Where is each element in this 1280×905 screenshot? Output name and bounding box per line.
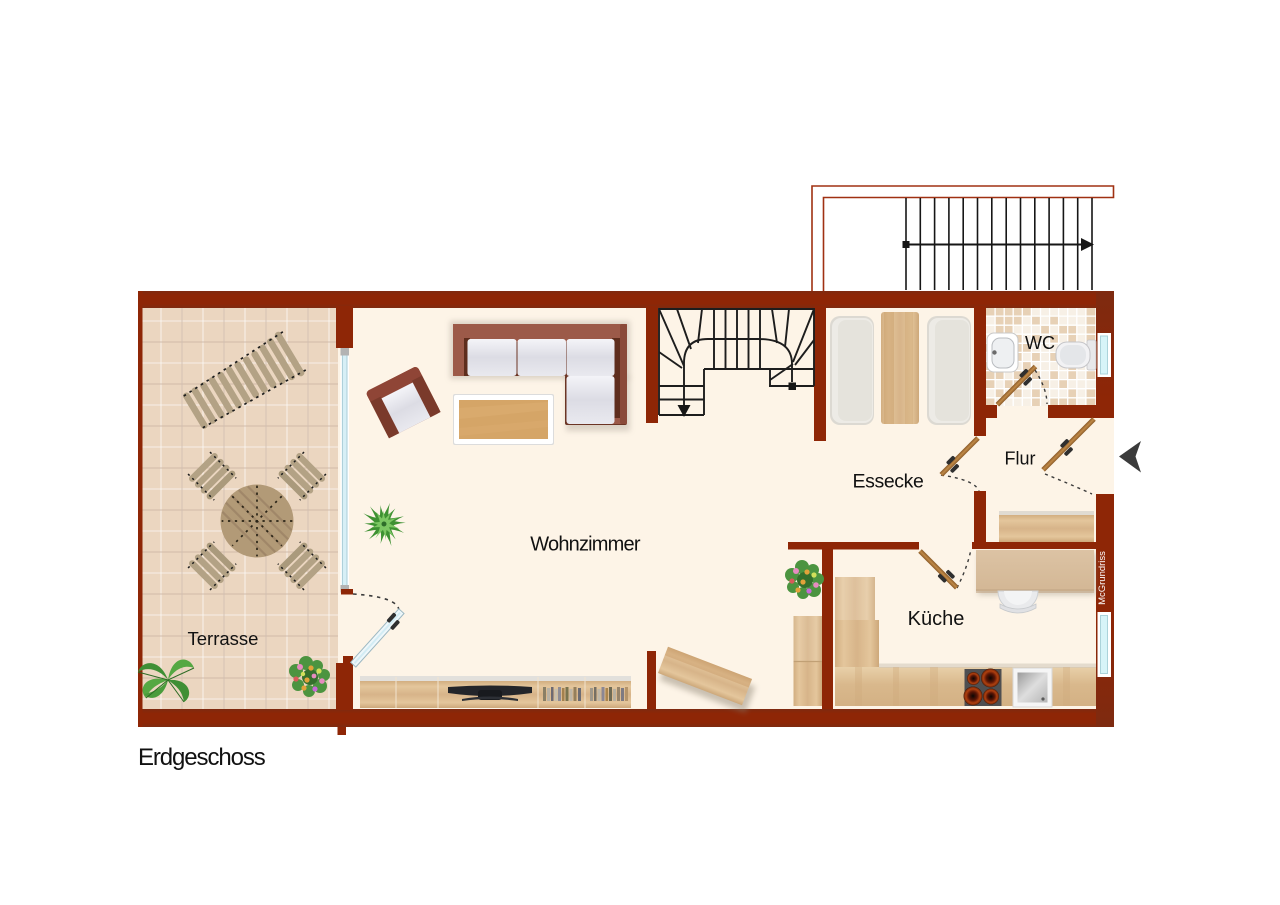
svg-text:McGrundriss: McGrundriss	[1097, 551, 1108, 605]
svg-text:Wohnzimmer: Wohnzimmer	[530, 534, 641, 556]
svg-text:Essecke: Essecke	[853, 471, 924, 493]
svg-text:Flur: Flur	[1005, 449, 1036, 469]
svg-text:Terrasse: Terrasse	[188, 628, 259, 649]
svg-text:Küche: Küche	[908, 608, 965, 630]
svg-text:Erdgeschoss: Erdgeschoss	[138, 744, 266, 771]
svg-text:WC: WC	[1025, 333, 1055, 353]
